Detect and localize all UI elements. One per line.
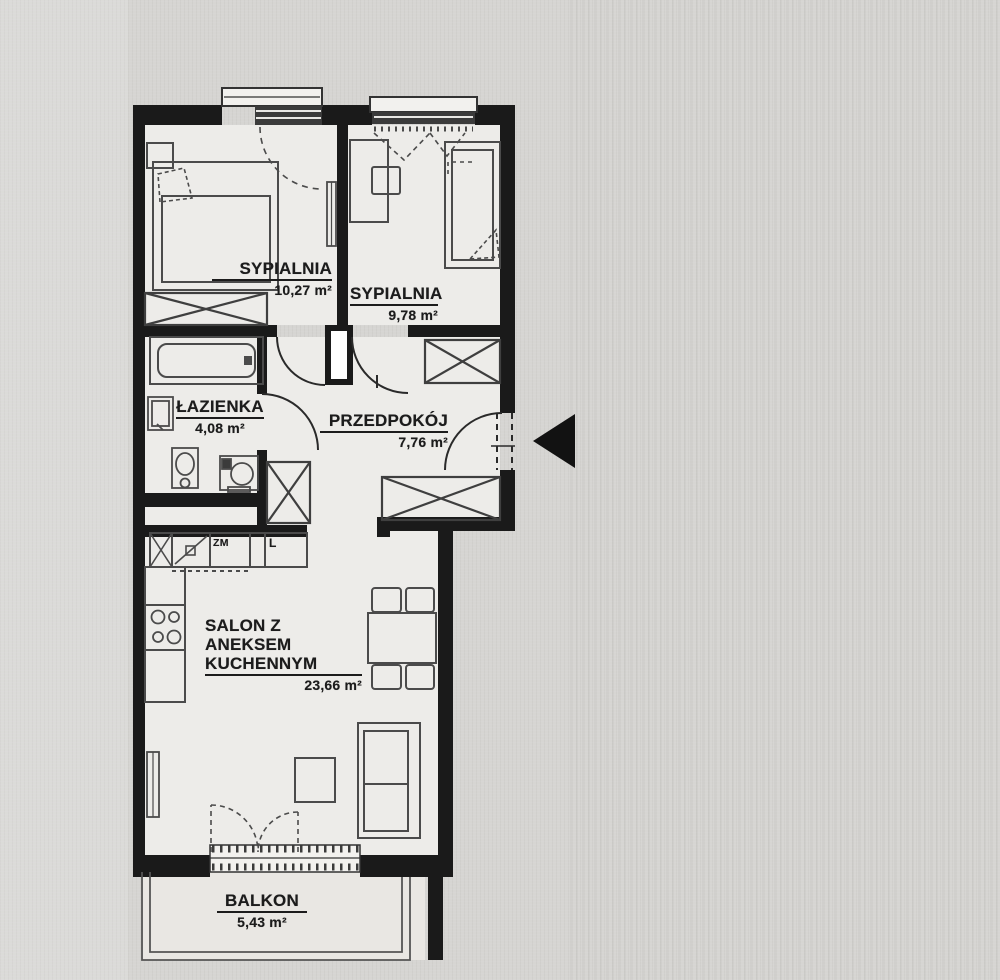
room-label-przedpokoj: PRZEDPOKÓJ 7,76 m² — [320, 411, 448, 451]
room-name: PRZEDPOKÓJ — [320, 411, 448, 433]
room-area: 10,27 m² — [212, 282, 332, 299]
room-area: 9,78 m² — [350, 307, 438, 324]
room-label-sypialnia-2: SYPIALNIA 9,78 m² — [350, 284, 438, 324]
room-label-salon: SALON Z ANEKSEM KUCHENNYM 23,66 m² — [205, 616, 362, 694]
kitchen-dishwasher-label: ZM — [213, 537, 229, 549]
vent-duct — [328, 328, 350, 382]
entrance-arrow-icon — [533, 414, 575, 468]
room-label-sypialnia-1: SYPIALNIA 10,27 m² — [212, 259, 332, 299]
room-name: SYPIALNIA — [212, 259, 332, 281]
room-area: 5,43 m² — [217, 914, 307, 931]
room-area: 4,08 m² — [176, 420, 264, 437]
room-name: ŁAZIENKA — [176, 397, 264, 419]
room-name: SYPIALNIA — [350, 284, 438, 306]
room-label-lazienka: ŁAZIENKA 4,08 m² — [176, 397, 264, 437]
room-name: SALON Z ANEKSEM — [205, 616, 362, 654]
room-area: 7,76 m² — [320, 434, 448, 451]
kitchen-fridge-label: L — [269, 536, 277, 550]
room-name-line2: KUCHENNYM — [205, 654, 362, 676]
room-area: 23,66 m² — [205, 677, 362, 694]
floor-plan-svg — [0, 0, 1000, 980]
room-name: BALKON — [217, 891, 307, 913]
floor-plan-page: SYPIALNIA 10,27 m² SYPIALNIA 9,78 m² ŁAZ… — [0, 0, 1000, 980]
room-label-balkon: BALKON 5,43 m² — [217, 891, 307, 931]
